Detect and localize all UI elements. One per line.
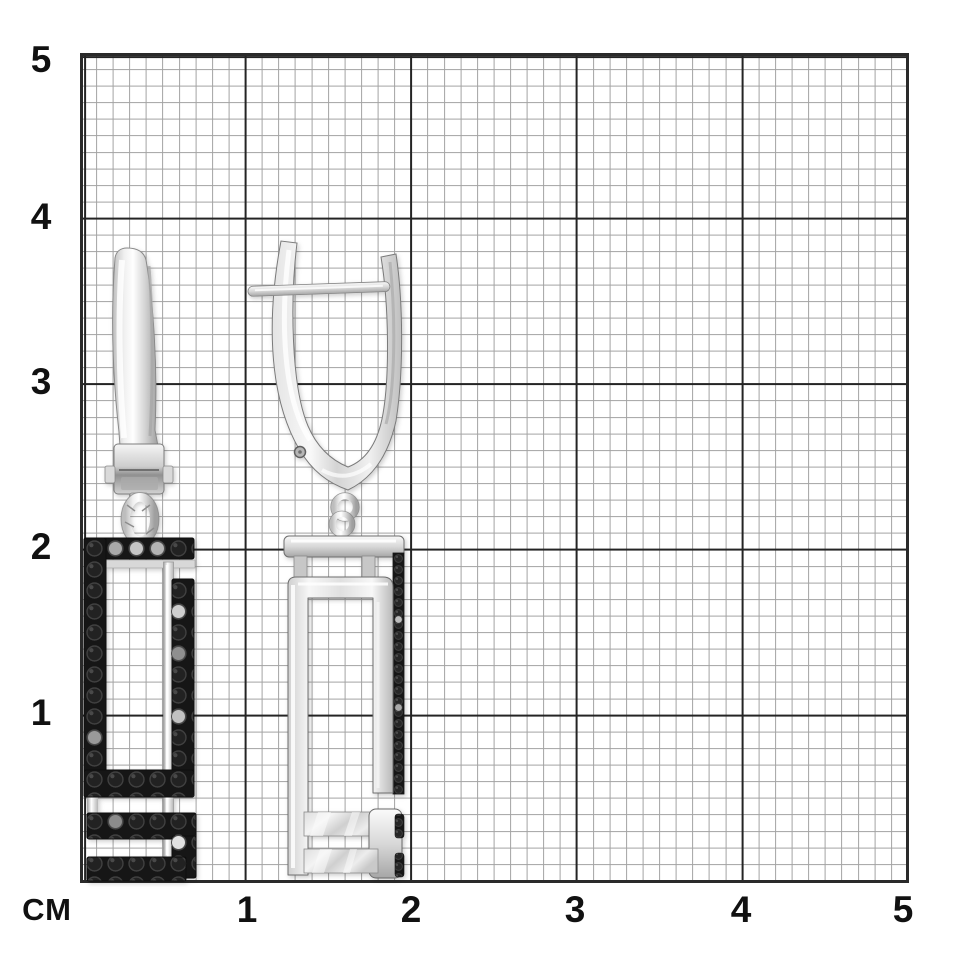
left-earring — [84, 248, 196, 881]
pave-bar-left — [84, 538, 106, 797]
left-earring-pendant — [84, 538, 196, 881]
clasp-shadow — [121, 477, 158, 490]
clasp-tab-right — [163, 466, 173, 483]
english-lock-body — [272, 241, 401, 490]
right-earring — [248, 241, 404, 878]
pendant-silver-connector — [87, 795, 98, 815]
earrings-illustration — [0, 0, 970, 970]
link-lower — [332, 514, 352, 534]
clasp-tab-left — [105, 466, 115, 483]
pendant-silver-backplate — [100, 560, 195, 568]
pendant-top-bar — [284, 536, 404, 557]
connector-stub-left — [294, 556, 307, 578]
block-pave-lower — [395, 853, 404, 877]
right-earring-links — [329, 493, 359, 537]
pin — [248, 281, 390, 296]
left-earring-hook — [113, 248, 158, 446]
hinge-rivet-center — [298, 450, 302, 454]
right-earring-hook — [248, 241, 402, 490]
block-pave-upper — [395, 814, 404, 838]
pave-bar-lower — [87, 857, 186, 881]
pave-bar-bottom — [84, 770, 194, 797]
jump-ring — [126, 497, 155, 541]
size-chart-photo: 5 4 3 2 1 СМ 1 2 3 4 5 — [0, 0, 970, 970]
pave-edge-strip — [393, 553, 404, 794]
right-earring-pendant — [284, 536, 404, 878]
connector-stub-right — [362, 556, 375, 578]
